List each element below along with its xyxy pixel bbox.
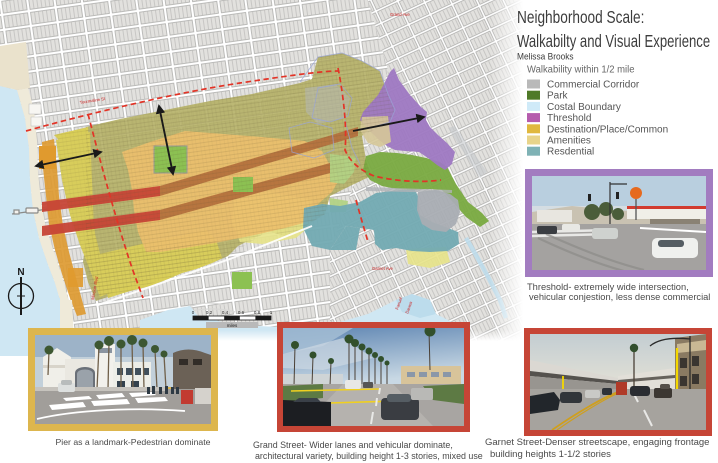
svg-text:Walkabilty and Visual Experien: Walkabilty and Visual Experience xyxy=(517,32,710,51)
svg-text:0.8: 0.8 xyxy=(254,310,261,315)
svg-text:Melissa Brooks: Melissa Brooks xyxy=(517,51,574,62)
svg-text:architectural variety, buildin: architectural variety, building height 1… xyxy=(255,451,483,461)
svg-text:Grand Street- Wider lanes and: Grand Street- Wider lanes and vehicular … xyxy=(253,440,453,450)
svg-text:Amenities: Amenities xyxy=(547,136,591,147)
svg-text:Threshold- extremely wide inte: Threshold- extremely wide intersection, xyxy=(527,282,689,292)
svg-text:Walkability within 1/2 mile: Walkability within 1/2 mile xyxy=(527,64,635,75)
svg-text:0.4: 0.4 xyxy=(222,310,229,315)
svg-text:Grand Ave: Grand Ave xyxy=(390,12,410,17)
svg-text:0.2: 0.2 xyxy=(206,310,213,315)
svg-text:Destination/Place/Common: Destination/Place/Common xyxy=(547,124,668,135)
svg-text:Neighborhood Scale:: Neighborhood Scale: xyxy=(517,9,644,28)
svg-text:Pier as a landmark-Pedestrian: Pier as a landmark-Pedestrian dominate xyxy=(55,437,210,447)
svg-text:Park: Park xyxy=(547,91,569,102)
svg-text:Resdential: Resdential xyxy=(547,147,594,158)
svg-text:N: N xyxy=(17,267,24,278)
svg-text:building heights 1-1/2 stories: building heights 1-1/2 stories xyxy=(490,449,611,460)
svg-text:Commercial Corridor: Commercial Corridor xyxy=(547,80,640,91)
svg-text:vehicular conjestion, less den: vehicular conjestion, less dense commerc… xyxy=(529,292,710,302)
svg-text:Costal Boundary: Costal Boundary xyxy=(547,102,621,113)
svg-text:Garnet Street-Denser streetsca: Garnet Street-Denser streetscape, engagi… xyxy=(485,437,709,448)
svg-text:miles: miles xyxy=(227,323,238,328)
svg-text:Threshold: Threshold xyxy=(547,113,591,124)
svg-text:Garnet Ave: Garnet Ave xyxy=(372,266,394,271)
svg-text:0.6: 0.6 xyxy=(238,310,245,315)
